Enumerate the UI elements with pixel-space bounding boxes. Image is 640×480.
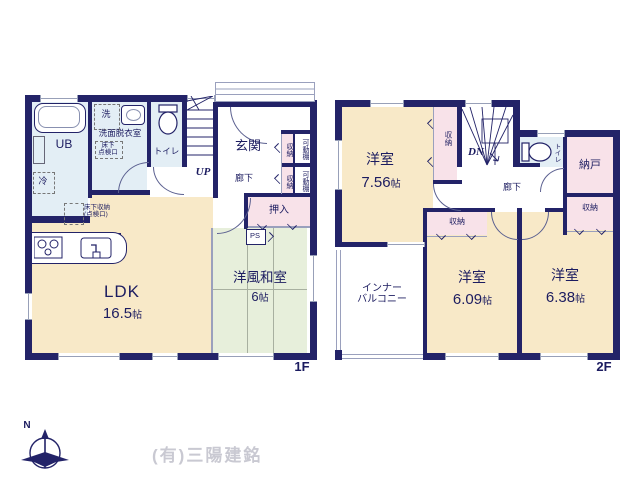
company-watermark: (有)三陽建銘	[152, 441, 262, 466]
stove-icon	[34, 236, 64, 260]
wall	[310, 100, 317, 360]
label-shelf-top: 可動棚	[297, 134, 309, 165]
floorplan-canvas: UB 洗 洗面脱衣室 床下点検口 トイレ UP 玄関 廊下 収納 可動棚 収納 …	[0, 0, 640, 480]
label-2f-609-name: 洋室	[452, 270, 492, 285]
label-ub: UB	[44, 138, 84, 151]
wall	[513, 107, 520, 167]
window	[310, 255, 317, 302]
entrance-porch-steps	[215, 82, 315, 102]
label-ldk-size: 16.5帖	[85, 306, 160, 323]
label-washroom: 洗面脱衣室	[91, 129, 149, 138]
window	[58, 353, 120, 360]
label-nando: 納戸	[572, 159, 608, 171]
label-2f-closet-strip: 収納	[439, 122, 452, 154]
underfloor-storage-hatch	[64, 203, 84, 225]
wall	[88, 102, 92, 198]
wall	[567, 193, 613, 197]
window-balcony-slider	[387, 242, 425, 247]
label-dn: DN	[461, 146, 491, 158]
toilet-icon	[156, 104, 180, 136]
closet-door-line	[427, 236, 487, 237]
window	[218, 353, 274, 360]
oshiire-door-line	[248, 226, 310, 228]
wall	[423, 242, 427, 360]
label-2f-638-size: 6.38帖	[538, 290, 593, 307]
wall	[213, 107, 218, 198]
label-tatami-size: 6帖	[240, 290, 280, 304]
balcony-edge	[336, 250, 341, 350]
label-ldk-name: LDK	[92, 283, 152, 302]
label-2f-609-size: 6.09帖	[445, 292, 500, 309]
label-2f-toilet: トイレ	[549, 139, 560, 166]
label-floor2: 2F	[590, 360, 618, 374]
wall	[335, 100, 520, 107]
window	[40, 95, 78, 102]
label-entrance: 玄関	[230, 139, 266, 153]
closet-door-line	[567, 231, 613, 232]
label-up: UP	[188, 166, 218, 178]
window	[537, 130, 565, 137]
window	[25, 293, 32, 320]
label-balcony: インナーバルコニー	[357, 283, 407, 305]
window	[335, 140, 342, 190]
door-arc-toilet-1f	[153, 167, 184, 195]
label-hallway-2f: 廊下	[498, 183, 526, 193]
balcony-edge	[342, 354, 423, 359]
label-tatami-name: 洋風和室	[227, 271, 293, 286]
window	[152, 353, 178, 360]
label-2f-756-name: 洋室	[360, 152, 400, 167]
label-2f-638-name: 洋室	[545, 268, 585, 283]
stairs-1f	[187, 96, 213, 167]
wall	[25, 95, 32, 360]
label-toilet-1f: トイレ	[149, 147, 184, 156]
wall	[520, 130, 620, 137]
compass-n-label: N	[20, 420, 34, 431]
room-ldk	[150, 197, 213, 353]
bathtub-icon	[34, 103, 86, 133]
kitchen-sink-icon	[80, 236, 116, 261]
sink-icon	[121, 105, 145, 125]
door-arc-2f-toilet	[540, 168, 564, 192]
wall-balcony-stub	[335, 350, 342, 360]
closet-2f-right	[567, 197, 613, 230]
label-floor-storage: 床下収納(点検口)	[84, 204, 118, 218]
label-laundry: 洗	[96, 110, 116, 120]
window	[465, 100, 492, 107]
label-oshiire: 押入	[261, 205, 297, 216]
door-arc-2f-756	[433, 184, 461, 211]
label-2f-756-size: 7.56帖	[352, 175, 410, 192]
label-ps: PS	[247, 232, 263, 240]
window	[445, 353, 499, 360]
label-shelf-bottom: 可動棚	[297, 166, 309, 197]
label-fridge: 冷	[34, 177, 52, 187]
label-hallway-1f: 廊下	[230, 174, 258, 184]
label-storage-bottom: 収納	[282, 168, 293, 196]
label-2f-closet-mid: 収納	[441, 218, 473, 227]
label-floor1: 1F	[288, 360, 316, 374]
closet-door-line	[433, 107, 434, 180]
room-ldk	[90, 195, 150, 353]
label-2f-closet-right: 収納	[574, 204, 606, 213]
label-underfloor-hatch: 床下点検口	[96, 142, 120, 156]
window	[370, 100, 404, 107]
window	[540, 353, 588, 360]
wall	[613, 130, 620, 360]
partition-tatami	[211, 228, 213, 353]
label-storage-top: 収納	[282, 136, 293, 164]
